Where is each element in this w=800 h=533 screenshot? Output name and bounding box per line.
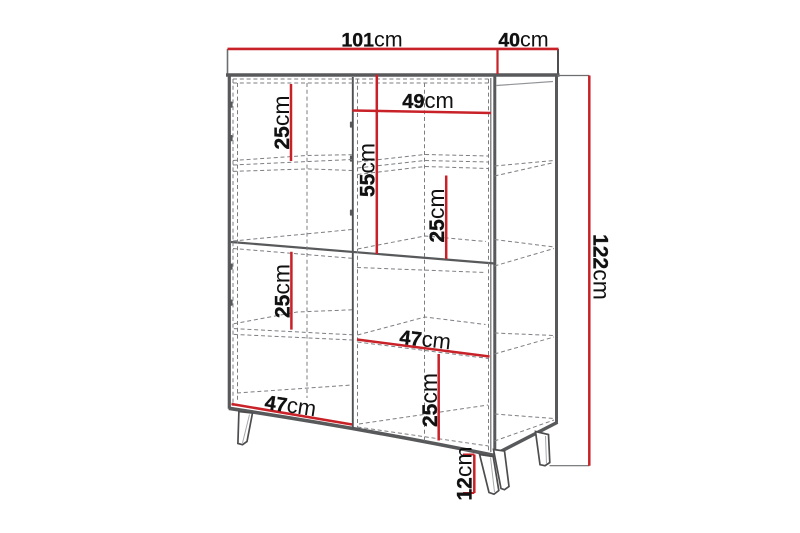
svg-text:122cm: 122cm	[589, 234, 615, 300]
svg-text:40cm: 40cm	[498, 27, 548, 51]
svg-text:101cm: 101cm	[341, 27, 402, 51]
svg-text:25cm: 25cm	[268, 95, 294, 149]
svg-text:25cm: 25cm	[416, 373, 442, 427]
svg-text:12cm: 12cm	[451, 446, 477, 500]
svg-text:49cm: 49cm	[402, 88, 454, 113]
svg-text:55cm: 55cm	[354, 143, 380, 197]
svg-text:25cm: 25cm	[269, 264, 295, 318]
svg-text:25cm: 25cm	[423, 188, 449, 242]
